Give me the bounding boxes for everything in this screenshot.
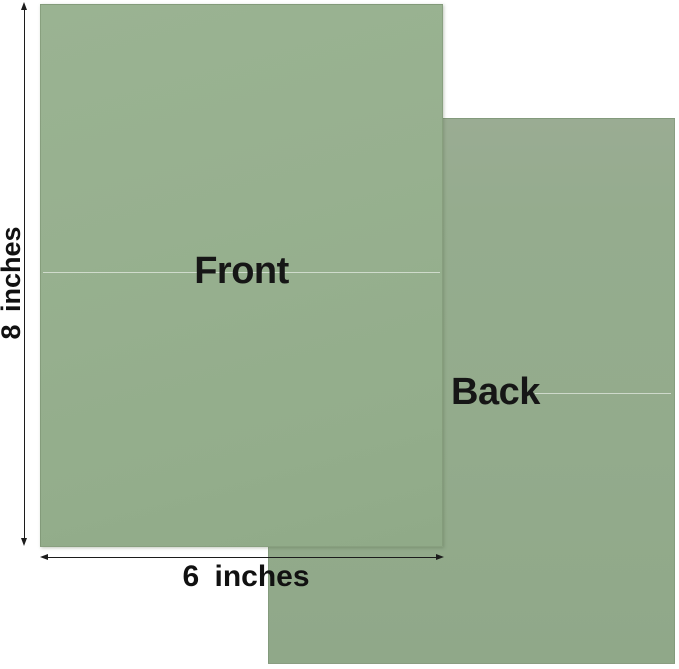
width-dimension-line bbox=[45, 557, 439, 558]
back-card-label: Back bbox=[451, 373, 540, 411]
arrow-up-icon bbox=[21, 2, 27, 10]
width-dimension-label: 6 inches bbox=[146, 562, 346, 592]
back-card-fold-crease bbox=[535, 393, 671, 394]
arrow-down-icon bbox=[21, 538, 27, 546]
height-dimension-label: 8 inches bbox=[0, 223, 22, 343]
front-card-label: Front bbox=[41, 252, 442, 290]
arrow-right-icon bbox=[436, 554, 444, 560]
product-dimension-diagram: Back Front 8 inches 6 inches bbox=[0, 0, 679, 669]
front-card: Front bbox=[40, 4, 443, 547]
arrow-left-icon bbox=[40, 554, 48, 560]
